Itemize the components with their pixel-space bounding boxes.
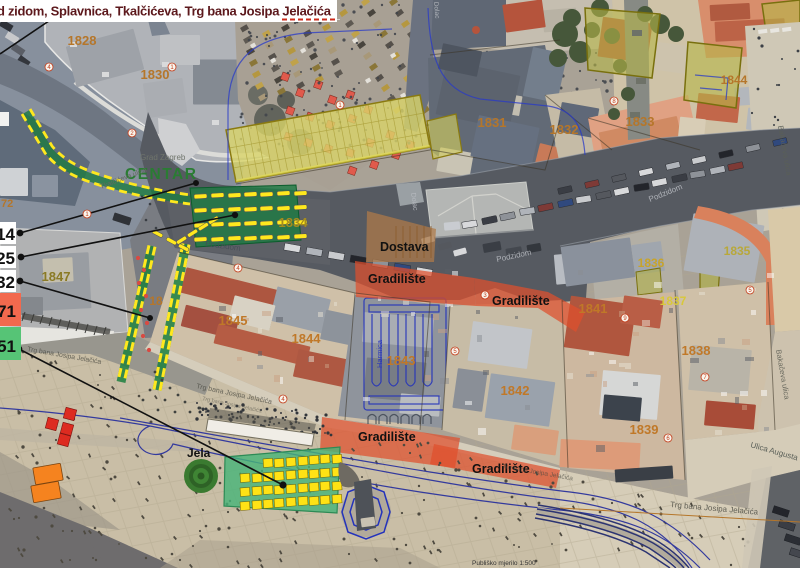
svg-text:Grad Zagreb: Grad Zagreb	[140, 153, 186, 162]
svg-text:1830: 1830	[141, 67, 170, 82]
svg-text:1844: 1844	[292, 331, 322, 346]
svg-text:32: 32	[0, 273, 15, 292]
svg-text:Harmica: Harmica	[375, 339, 384, 368]
svg-text:71: 71	[0, 302, 16, 321]
svg-text:1847: 1847	[42, 269, 71, 284]
svg-text:1832: 1832	[550, 122, 579, 137]
svg-text:25: 25	[0, 249, 15, 268]
svg-text:1844: 1844	[721, 73, 748, 87]
svg-text:Jela: Jela	[187, 446, 211, 460]
svg-text:18: 18	[149, 294, 163, 308]
svg-text:1845: 1845	[219, 313, 248, 328]
svg-text:1839: 1839	[630, 422, 659, 437]
svg-text:1831: 1831	[478, 115, 507, 130]
svg-text:1833: 1833	[626, 114, 655, 129]
svg-text:1837: 1837	[660, 294, 687, 308]
svg-text:Gradilište: Gradilište	[368, 272, 426, 286]
svg-text:Gradilište: Gradilište	[492, 294, 550, 308]
svg-text:1828: 1828	[68, 33, 97, 48]
svg-text:51: 51	[0, 337, 16, 356]
svg-text:1835: 1835	[724, 244, 751, 258]
svg-text:d zidom, Splavnica, Tkalčićeva: d zidom, Splavnica, Tkalčićeva, Trg bana…	[0, 4, 332, 19]
svg-text:1834: 1834	[279, 215, 309, 230]
svg-text:Gradilište: Gradilište	[358, 430, 416, 444]
svg-text:1841: 1841	[579, 301, 608, 316]
svg-text:72: 72	[1, 198, 13, 210]
svg-text:1836: 1836	[638, 256, 665, 270]
svg-text:Publiško mjerilo 1:500: Publiško mjerilo 1:500	[472, 560, 536, 567]
svg-text:1842: 1842	[501, 383, 530, 398]
svg-text:14: 14	[0, 225, 16, 244]
svg-text:1838: 1838	[682, 343, 711, 358]
svg-text:Dostava: Dostava	[380, 240, 430, 254]
svg-text:1843: 1843	[387, 353, 416, 368]
